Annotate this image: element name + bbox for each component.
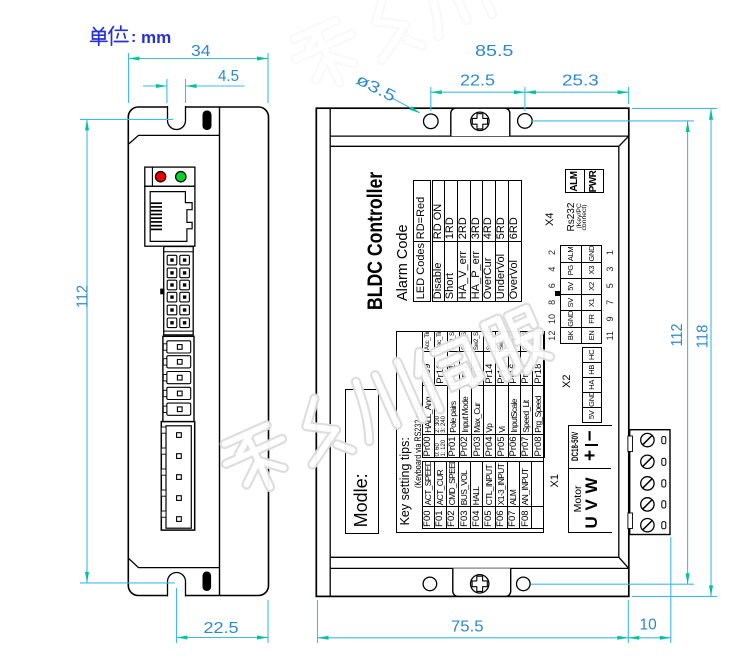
svg-text:118: 118: [695, 325, 712, 349]
svg-text:75.5: 75.5: [451, 619, 484, 636]
svg-text:34: 34: [191, 43, 211, 60]
svg-text:25.3: 25.3: [562, 73, 599, 90]
svg-text::: :: [131, 29, 136, 46]
svg-text:85.5: 85.5: [475, 43, 514, 60]
svg-text:22.5: 22.5: [460, 73, 495, 90]
svg-text:ø3.5: ø3.5: [353, 71, 398, 105]
svg-text:112: 112: [669, 323, 686, 346]
svg-text:4.5: 4.5: [218, 68, 239, 85]
svg-text:mm: mm: [141, 28, 171, 47]
svg-text:10: 10: [640, 617, 657, 634]
svg-text:112: 112: [75, 285, 92, 308]
svg-text:22.5: 22.5: [204, 620, 239, 637]
